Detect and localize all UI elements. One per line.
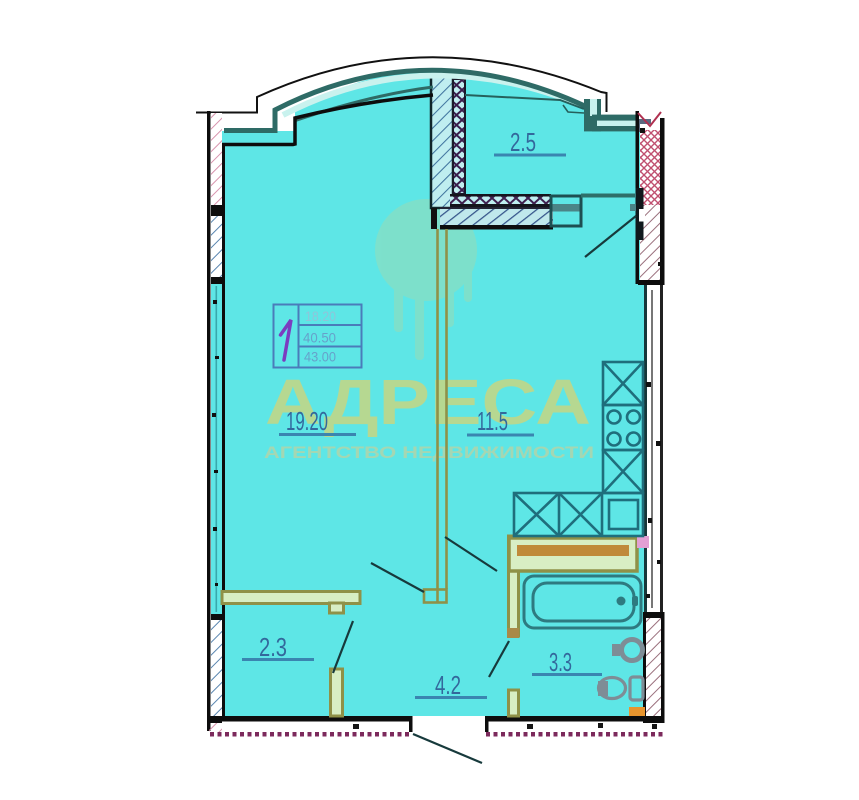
svg-text:2.5: 2.5 [510,127,536,157]
svg-text:4.2: 4.2 [435,670,461,700]
svg-text:2.3: 2.3 [259,632,287,662]
svg-text:3.3: 3.3 [549,647,572,677]
svg-text:43.00: 43.00 [304,349,336,365]
svg-text:19.20: 19.20 [286,406,328,436]
svg-text:АГЕНТСТВО НЕДВИЖИМОСТИ: АГЕНТСТВО НЕДВИЖИМОСТИ [264,443,594,462]
svg-text:40.50: 40.50 [303,330,336,346]
svg-text:18.20: 18.20 [305,308,336,324]
svg-text:11.5: 11.5 [477,406,508,436]
